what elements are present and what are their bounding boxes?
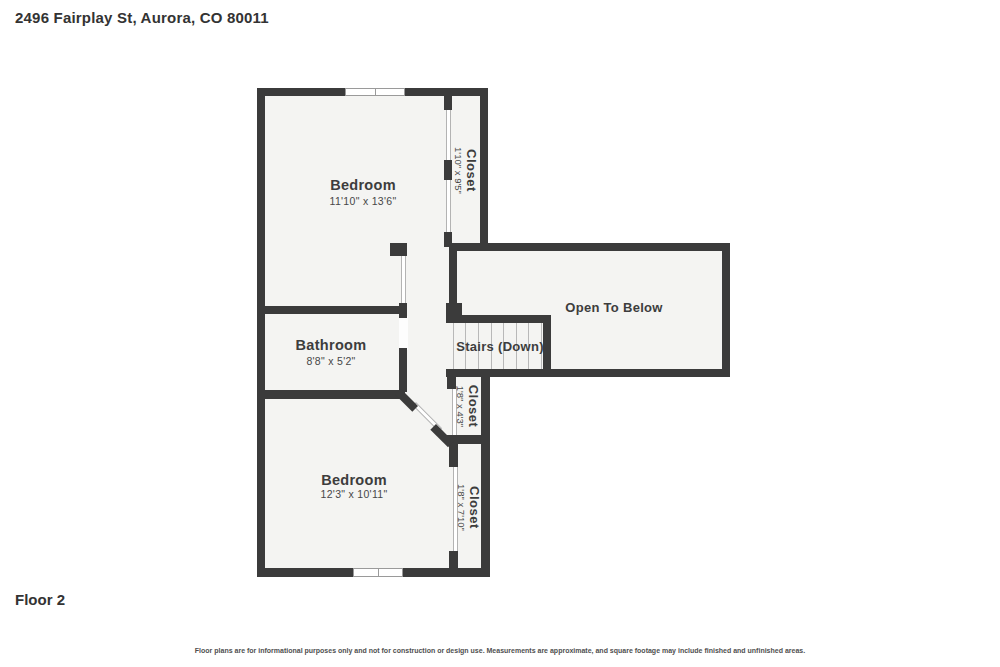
open-to-below-label: Open To Below: [565, 300, 663, 315]
wall-otb-right: [722, 243, 730, 377]
window-top-mullion: [375, 89, 376, 95]
bedroom-bottom-dims: 12'3" x 10'11": [321, 488, 388, 500]
wall-stairs-right: [543, 315, 551, 377]
wall-bathroom-right: [399, 348, 407, 392]
window-bottom: [353, 568, 403, 577]
property-address: 2496 Fairplay St, Aurora, CO 80011: [15, 9, 269, 26]
bathroom-label: Bathroom: [296, 337, 367, 353]
hall-door-line: [401, 254, 406, 306]
bedroom-top-label: Bedroom: [330, 177, 396, 193]
wall-closet-top-right: [480, 88, 488, 250]
wall-hall-jamb-top: [390, 243, 407, 256]
wall-otb-top: [449, 243, 730, 251]
closet-bottom-dims: 1'8" x 7'10": [456, 484, 467, 531]
stairs-label: Stairs (Down): [456, 339, 544, 354]
closet-mid-label: Closet: [466, 385, 481, 428]
wall-bedroom1-bottom: [257, 306, 407, 314]
closet-mid-label-group: Closet 1'8" x 4'3": [455, 385, 481, 428]
floor-plan-page: 2496 Fairplay St, Aurora, CO 80011 Floor…: [0, 0, 1000, 667]
window-bottom-mullion: [378, 569, 379, 576]
wall-divider-stub-3: [444, 232, 452, 247]
closet-bottom-label-group: Closet 1'8" x 7'10": [456, 483, 482, 531]
closet-top-label-group: Closet 1'10" x 9'5": [453, 146, 479, 194]
wall-closet-bottom-jamb-low: [449, 551, 458, 568]
wall-divider-stub-1: [444, 96, 452, 110]
bedroom-top-dims: 11'10" x 13'6": [330, 195, 397, 207]
wall-outer-left: [257, 88, 265, 577]
wall-hall-jamb-mid: [399, 303, 407, 318]
window-top: [345, 88, 405, 96]
closet-top-label: Closet: [464, 146, 479, 194]
closet-top-dims: 1'10" x 9'5": [453, 147, 464, 194]
bathroom-dims: 8'8" x 5'2": [306, 355, 355, 367]
bathroom-doorway: [399, 316, 408, 350]
floor-label: Floor 2: [15, 591, 65, 608]
wall-stairs-corner: [446, 303, 462, 319]
closet-mid-dims: 1'8" x 4'3": [455, 386, 466, 428]
bedroom-bottom-label: Bedroom: [321, 472, 387, 488]
wall-bathroom-bottom: [257, 390, 405, 399]
disclaimer-text: Floor plans are for informational purpos…: [0, 647, 1000, 654]
wall-divider-stub-2: [444, 160, 452, 180]
wall-right-lower: [481, 369, 490, 577]
closet-bottom-label: Closet: [467, 483, 482, 531]
wall-closet-bottom-jamb-top: [449, 444, 458, 467]
